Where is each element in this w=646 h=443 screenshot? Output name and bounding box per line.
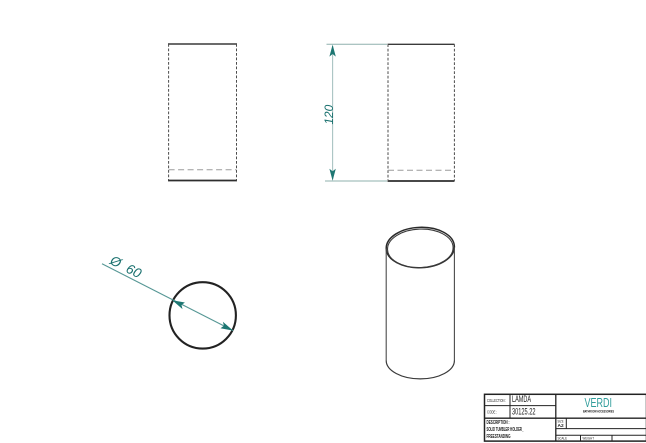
svg-text:A2: A2 (558, 423, 564, 429)
svg-text:SCALE: SCALE (558, 437, 568, 441)
svg-text:CODE :: CODE : (487, 409, 497, 414)
svg-text:COLLECTION :: COLLECTION : (487, 398, 506, 403)
svg-text:WEIGHT: WEIGHT (583, 437, 595, 441)
svg-text:SOLID TUMBLER HOLDER_: SOLID TUMBLER HOLDER_ (487, 427, 525, 433)
svg-text:BATHROOM ACCESSORIES: BATHROOM ACCESSORIES (583, 408, 614, 413)
svg-text:DESCRIPTION :: DESCRIPTION : (487, 420, 510, 426)
svg-text:Ø 60: Ø 60 (107, 252, 145, 281)
svg-text:30125.22: 30125.22 (512, 406, 536, 417)
svg-text:SIZE: SIZE (558, 419, 565, 423)
svg-text:LAMDA: LAMDA (512, 394, 531, 404)
svg-text:FREESTANDING: FREESTANDING (487, 434, 511, 440)
svg-text:120: 120 (322, 104, 336, 124)
